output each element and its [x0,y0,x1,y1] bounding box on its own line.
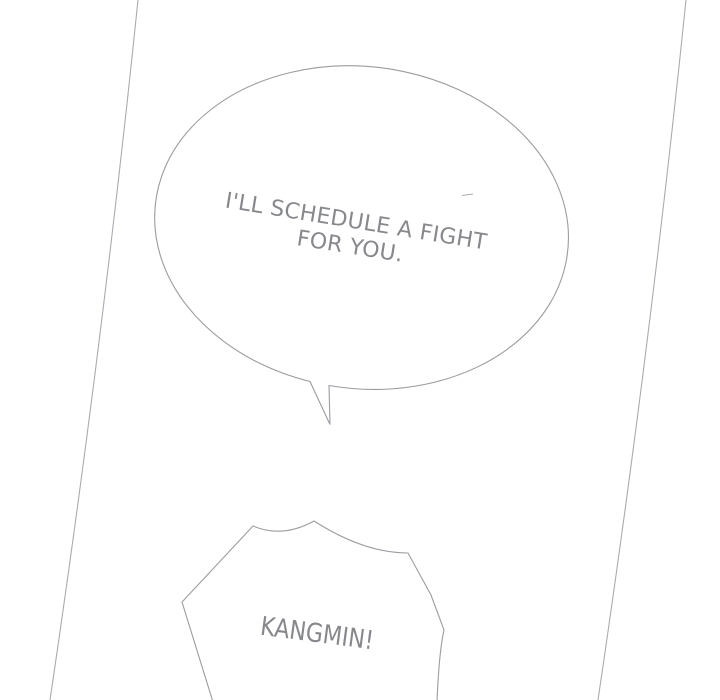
panel-artwork [0,0,720,700]
webtoon-panel: I'LL SCHEDULE A FIGHT FOR YOU. KANGMIN! [0,0,720,700]
shout-bubble [182,521,444,700]
panel-right-border-line [598,0,686,700]
panel-left-border-line [50,0,138,700]
